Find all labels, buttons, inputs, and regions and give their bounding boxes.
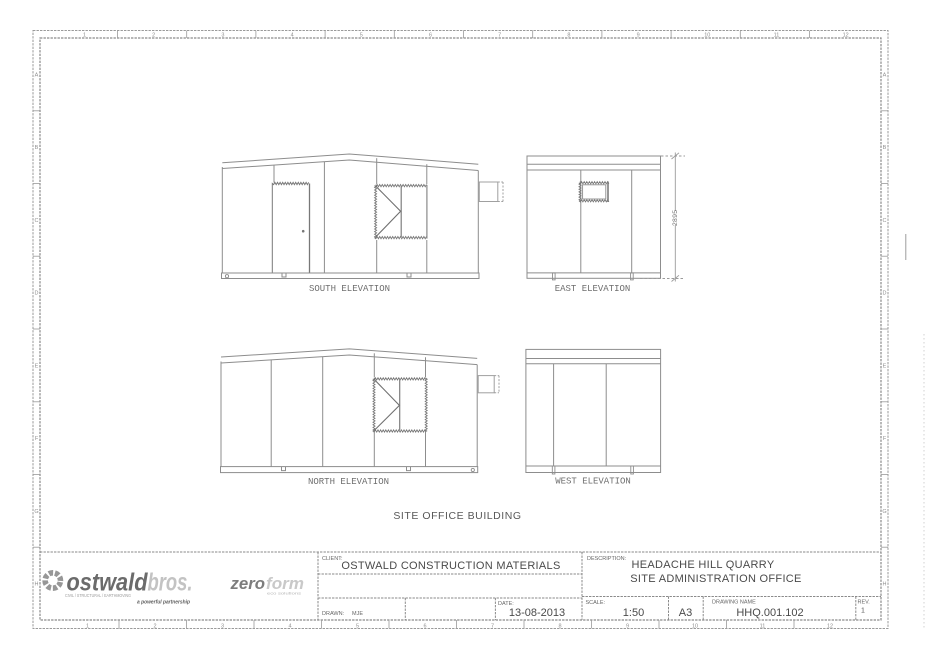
svg-text:eco solutions: eco solutions [267,591,301,596]
svg-text:12: 12 [827,624,833,630]
svg-text:D: D [35,291,39,297]
svg-text:8: 8 [567,33,570,39]
svg-text:H: H [883,582,887,588]
svg-text:1: 1 [861,608,865,615]
svg-text:DRAWN:: DRAWN: [322,611,345,617]
svg-text:1: 1 [83,33,86,39]
svg-text:11: 11 [760,624,766,630]
svg-text:D: D [883,291,887,297]
svg-text:1:50: 1:50 [623,607,644,619]
svg-text:11: 11 [774,33,780,39]
svg-text:3: 3 [221,33,224,39]
svg-text:13-08-2013: 13-08-2013 [509,607,565,619]
svg-text:SOUTH ELEVATION: SOUTH ELEVATION [309,284,390,294]
svg-text:G: G [882,509,886,515]
svg-text:CLIENT:: CLIENT: [322,556,343,562]
svg-text:4: 4 [288,624,291,630]
svg-text:2: 2 [152,33,155,39]
svg-text:SITE OFFICE BUILDING: SITE OFFICE BUILDING [393,510,521,522]
svg-text:B: B [35,145,39,151]
svg-text:9: 9 [626,624,629,630]
svg-text:OSTWALD CONSTRUCTION MATERIALS: OSTWALD CONSTRUCTION MATERIALS [341,560,560,572]
svg-text:7: 7 [491,624,494,630]
svg-text:zero: zero [230,574,265,593]
svg-text:DRAWING NAME: DRAWING NAME [712,600,756,606]
svg-text:6: 6 [429,33,432,39]
svg-text:HEADACHE HILL QUARRY: HEADACHE HILL QUARRY [632,559,775,571]
svg-text:SCALE:: SCALE: [586,600,606,606]
svg-text:WEST ELEVATION: WEST ELEVATION [555,477,631,487]
svg-text:H: H [35,582,39,588]
svg-text:2: 2 [153,624,156,630]
svg-text:5: 5 [356,624,359,630]
svg-text:7: 7 [498,33,501,39]
svg-text:G: G [34,509,38,515]
svg-text:10: 10 [704,33,710,39]
svg-text:NORTH ELEVATION: NORTH ELEVATION [308,477,389,487]
svg-text:3: 3 [221,624,224,630]
svg-text:C: C [883,218,887,224]
svg-text:HHQ.001.102: HHQ.001.102 [736,607,803,619]
svg-text:DESCRIPTION:: DESCRIPTION: [587,556,627,562]
svg-text:CIVIL / STRUCTURAL / EARTHMOVI: CIVIL / STRUCTURAL / EARTHMOVING [65,593,131,598]
svg-text:E: E [883,363,887,369]
svg-text:E: E [35,363,39,369]
svg-text:1: 1 [86,624,89,630]
svg-text:EAST ELEVATION: EAST ELEVATION [555,284,631,294]
svg-text:9: 9 [637,33,640,39]
svg-text:4: 4 [291,33,294,39]
svg-text:B: B [883,145,887,151]
svg-text:C: C [35,218,39,224]
svg-text:2895: 2895 [672,210,680,226]
svg-text:SITE ADMINISTRATION OFFICE: SITE ADMINISTRATION OFFICE [630,573,801,585]
svg-text:a powerful partnership: a powerful partnership [137,600,191,606]
svg-text:bros.: bros. [148,569,193,597]
svg-text:A: A [883,72,887,78]
svg-text:A: A [35,72,39,78]
svg-text:10: 10 [692,624,698,630]
svg-text:5: 5 [360,33,363,39]
svg-text:A3: A3 [679,607,692,619]
svg-text:12: 12 [843,33,849,39]
svg-text:MJE: MJE [352,611,363,617]
svg-text:6: 6 [423,624,426,630]
svg-text:8: 8 [558,624,561,630]
svg-text:REV.: REV. [858,600,871,606]
